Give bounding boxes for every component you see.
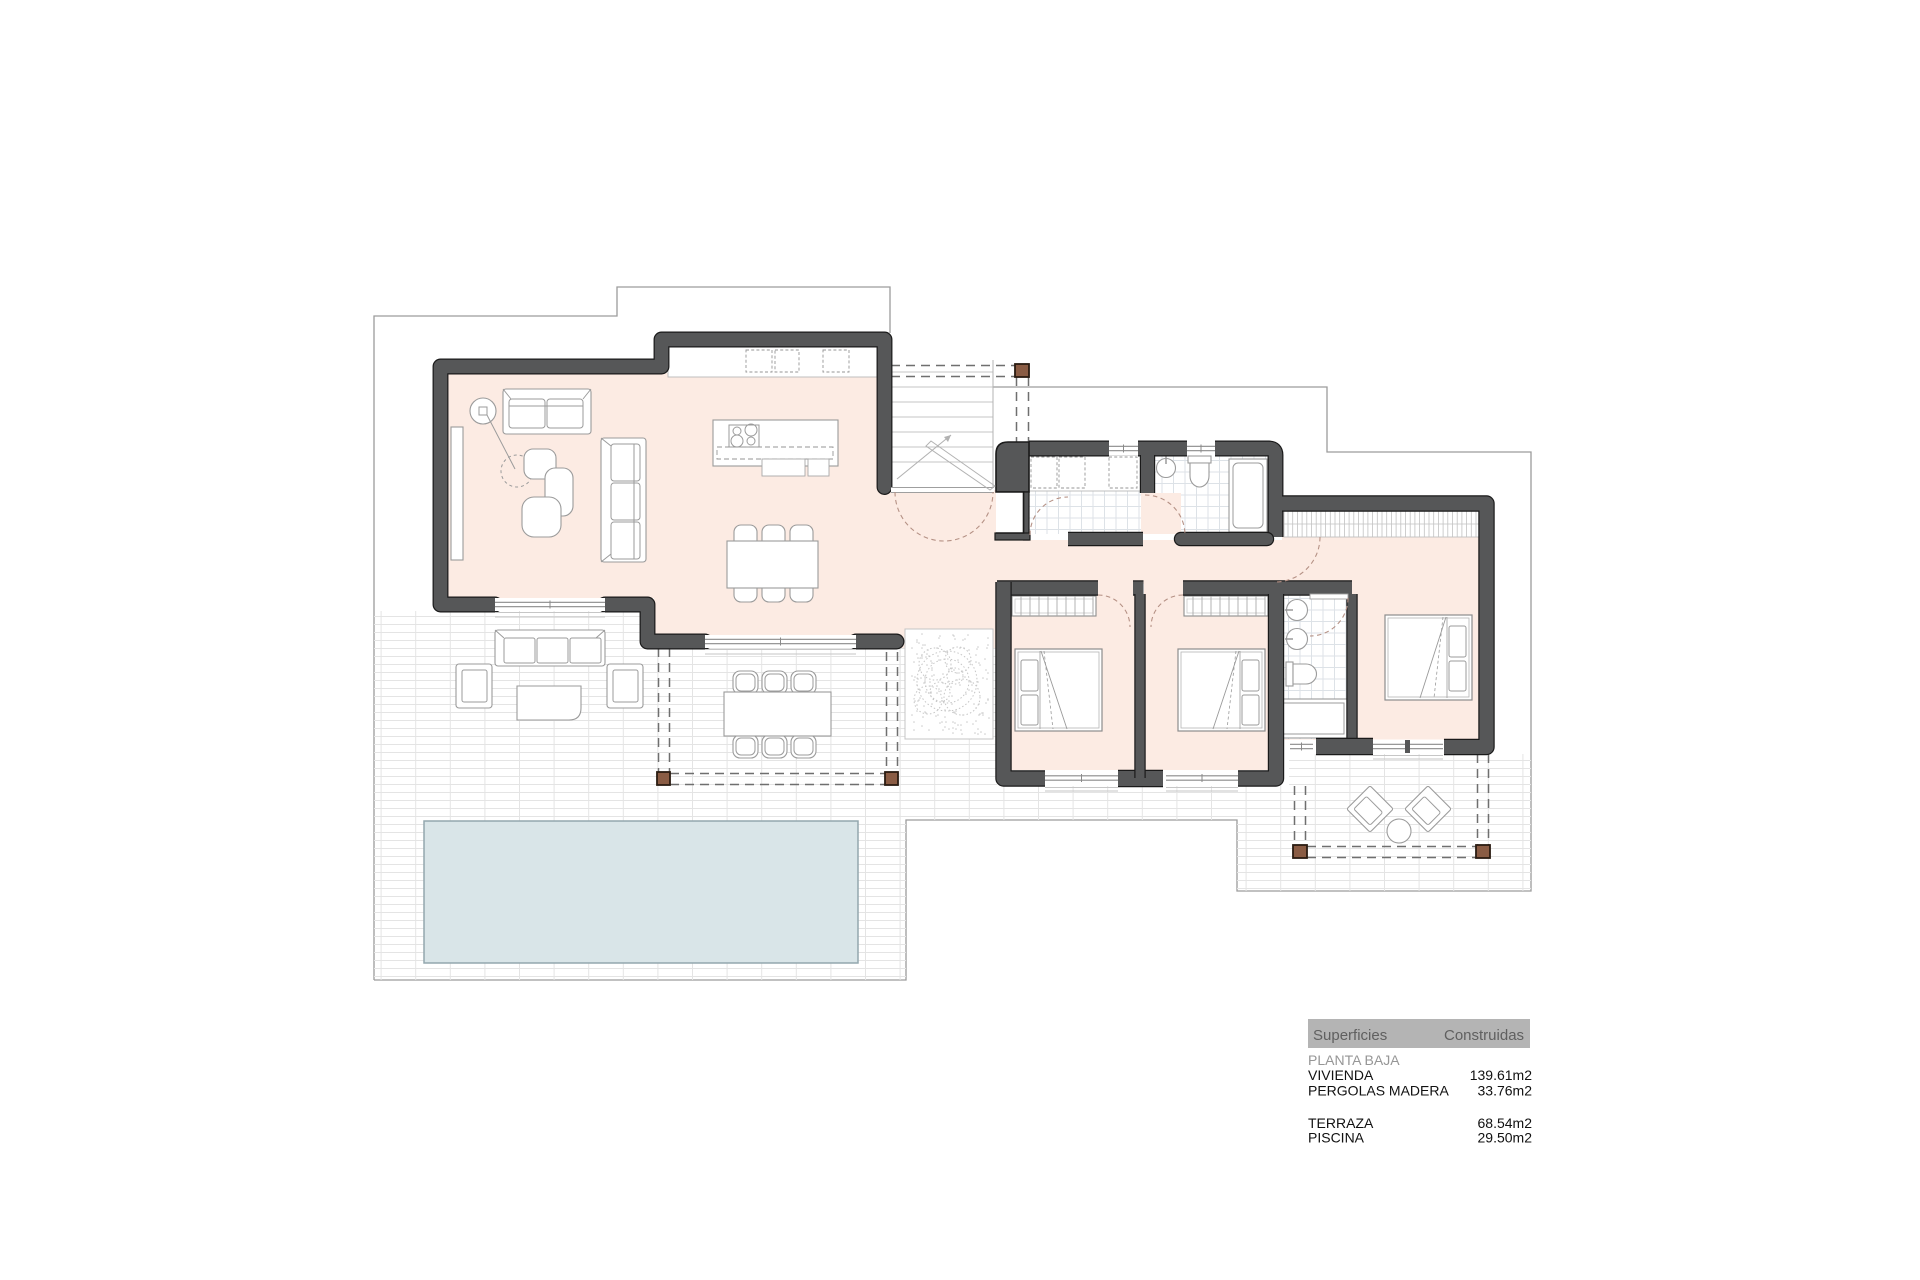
svg-text:139.61m2: 139.61m2 [1470, 1067, 1532, 1083]
svg-text:PLANTA BAJA: PLANTA BAJA [1308, 1052, 1400, 1068]
svg-text:PISCINA: PISCINA [1308, 1130, 1365, 1146]
svg-text:29.50m2: 29.50m2 [1478, 1130, 1533, 1146]
svg-text:PERGOLAS MADERA: PERGOLAS MADERA [1308, 1083, 1449, 1099]
svg-text:VIVIENDA: VIVIENDA [1308, 1067, 1374, 1083]
svg-text:Superficies: Superficies [1313, 1027, 1387, 1044]
svg-text:Construidas: Construidas [1444, 1027, 1524, 1044]
svg-text:33.76m2: 33.76m2 [1478, 1083, 1533, 1099]
